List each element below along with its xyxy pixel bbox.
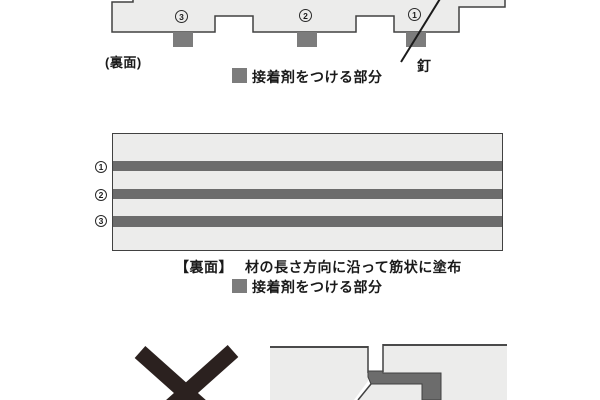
adhesive-stripe-2 xyxy=(113,189,502,199)
circled-number-2: 2 xyxy=(299,9,312,22)
caption-text: 材の長さ方向に沿って筋状に塗布 xyxy=(245,257,462,277)
adhesive-spot-2 xyxy=(297,32,317,47)
circled-number-label: 3 xyxy=(99,216,104,226)
left-board xyxy=(270,346,368,400)
adhesive-stripe-3 xyxy=(113,216,502,227)
circled-number-2: 2 xyxy=(95,189,107,201)
adhesive-stripe-1 xyxy=(113,161,502,171)
adhesive-legend-text: 接着剤をつける部分 xyxy=(252,277,383,297)
adhesive-legend-swatch xyxy=(232,68,247,83)
striped-board-diagram xyxy=(112,133,503,251)
circled-number-label: 2 xyxy=(303,11,308,21)
adhesive-spot-3 xyxy=(173,32,193,47)
circled-number-label: 1 xyxy=(412,10,417,20)
circled-number-label: 1 xyxy=(99,162,104,172)
adhesive-legend-swatch xyxy=(232,279,247,293)
back-side-label: (裏面) xyxy=(105,52,142,71)
caption-tag: 【裏面】 xyxy=(175,257,233,277)
adhesive-legend-text: 接着剤をつける部分 xyxy=(252,67,383,87)
circled-number-1: 1 xyxy=(95,161,107,173)
middle-caption: 【裏面】 材の長さ方向に沿って筋状に塗布 xyxy=(175,257,462,277)
circled-number-3: 3 xyxy=(175,10,188,23)
nail-label: 釘 xyxy=(417,56,432,76)
joint-cross-section-diagram xyxy=(240,335,510,400)
incorrect-x-mark-icon xyxy=(125,344,250,400)
circled-number-1: 1 xyxy=(408,8,421,21)
instruction-diagram-page: 3 2 1 (裏面) 釘 接着剤をつける部分 1 2 3 【裏面】 材の長さ方向… xyxy=(0,0,600,400)
circled-number-label: 3 xyxy=(179,12,184,22)
circled-number-label: 2 xyxy=(99,190,104,200)
circled-number-3: 3 xyxy=(95,215,107,227)
joint-lower-lip xyxy=(358,384,423,400)
